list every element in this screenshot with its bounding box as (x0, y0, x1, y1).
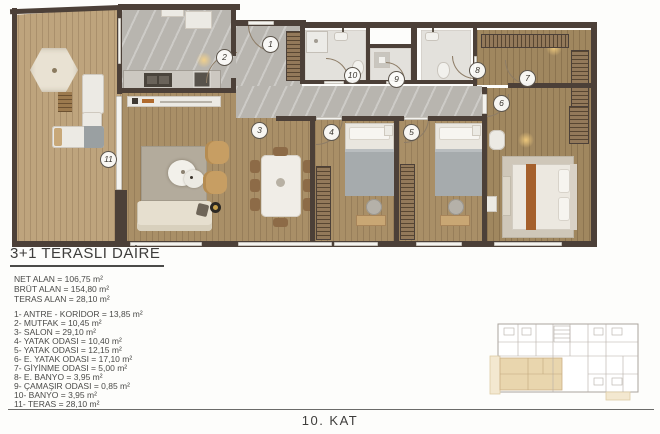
toilet (437, 62, 450, 79)
outdoor-sofa (82, 74, 104, 114)
room-marker-6: 6 (493, 95, 510, 112)
terrace-sliding-door (116, 96, 122, 190)
dining-chair (250, 198, 260, 211)
wardrobe (569, 106, 589, 144)
wall (300, 22, 597, 28)
door (324, 81, 344, 84)
window (416, 242, 462, 246)
wall (428, 116, 484, 121)
floor-lamp-light (213, 205, 218, 210)
floor-plan-page: 1 2 3 4 5 6 7 8 9 10 11 3+1 TERASLI DAİR… (0, 0, 660, 434)
console-decor (132, 98, 138, 104)
bedroom-armchair (489, 130, 505, 150)
wardrobe (481, 34, 569, 48)
room-marker-1: 1 (262, 36, 279, 53)
dining-chair (250, 179, 260, 192)
bed-pillow (558, 197, 570, 221)
lounger-blanket (84, 126, 104, 148)
wall (310, 116, 315, 242)
sink (425, 32, 439, 41)
terrace-area: TERAS ALAN = 28,10 m² (14, 294, 110, 304)
key-plan (488, 316, 652, 408)
wall (591, 24, 597, 247)
desk (356, 215, 386, 226)
room-marker-10: 10 (344, 67, 361, 84)
refrigerator (185, 11, 212, 29)
wardrobe (571, 50, 589, 112)
nightstand (472, 125, 481, 136)
room-marker-5: 5 (403, 124, 420, 141)
wall (118, 4, 240, 10)
key-plan-terrace-highlight (490, 356, 500, 394)
page-title: 3+1 TERASLI DAİRE (10, 245, 164, 267)
room-list-item: 11- TERAS = 28,10 m² (14, 400, 143, 409)
wardrobe (316, 166, 331, 240)
window (494, 242, 562, 246)
bed-blanket (345, 149, 394, 196)
wall (12, 8, 17, 246)
nightstand (384, 125, 393, 136)
room-marker-9: 9 (388, 71, 405, 88)
bed-pillow (558, 169, 570, 193)
room-list: 1- ANTRE - KORİDOR = 13,85 m² 2- MUTFAK … (14, 310, 143, 409)
wall (231, 4, 236, 56)
entrance-door (248, 21, 274, 25)
wall (370, 44, 411, 48)
pouf (366, 199, 382, 215)
sink-basin (159, 76, 169, 84)
wall (411, 26, 417, 84)
window (238, 242, 332, 246)
room-marker-2: 2 (216, 49, 233, 66)
table-decor (190, 176, 193, 179)
sink (334, 32, 348, 41)
wall (115, 190, 127, 242)
room-marker-7: 7 (519, 70, 536, 87)
window (334, 242, 378, 246)
dining-chair (273, 147, 288, 156)
room-marker-3: 3 (251, 122, 268, 139)
coffee-table (184, 170, 204, 188)
dining-chair (250, 160, 260, 173)
desk (440, 215, 470, 226)
bed-runner (526, 164, 536, 230)
table-centerpiece (276, 178, 285, 187)
door (316, 117, 342, 120)
door (404, 117, 428, 120)
wardrobe (400, 164, 415, 240)
armchair (203, 171, 227, 194)
bed-bench (502, 176, 511, 216)
divider (8, 409, 654, 410)
armchair (205, 141, 229, 164)
table-decor (181, 170, 185, 174)
lounger-pillow (54, 128, 62, 146)
patio-table (58, 92, 72, 112)
console-decor (142, 99, 154, 103)
light-glow (196, 52, 212, 68)
wall (366, 26, 370, 84)
area-summary: NET ALAN = 106,75 m² BRÜT ALAN = 154,80 … (14, 274, 110, 304)
corridor-floor (236, 86, 482, 118)
gross-area: BRÜT ALAN = 154,80 m² (14, 284, 110, 294)
console-decor (160, 101, 212, 103)
shower-drain (314, 39, 318, 43)
sink-basin (147, 76, 157, 84)
net-area: NET ALAN = 106,75 m² (14, 274, 110, 284)
window (118, 18, 121, 64)
bed-blanket (435, 149, 484, 196)
wall (394, 116, 399, 242)
light-glow (518, 132, 534, 148)
floor-label: 10. KAT (230, 413, 430, 428)
umbrella-pole (52, 68, 57, 73)
dining-chair (273, 218, 288, 227)
door (482, 94, 487, 114)
pouf (448, 199, 464, 215)
room-marker-8: 8 (469, 62, 486, 79)
headboard (570, 164, 577, 230)
wall (300, 26, 305, 84)
room-marker-11: 11 (100, 151, 117, 168)
wall (122, 88, 236, 93)
room-marker-4: 4 (323, 124, 340, 141)
